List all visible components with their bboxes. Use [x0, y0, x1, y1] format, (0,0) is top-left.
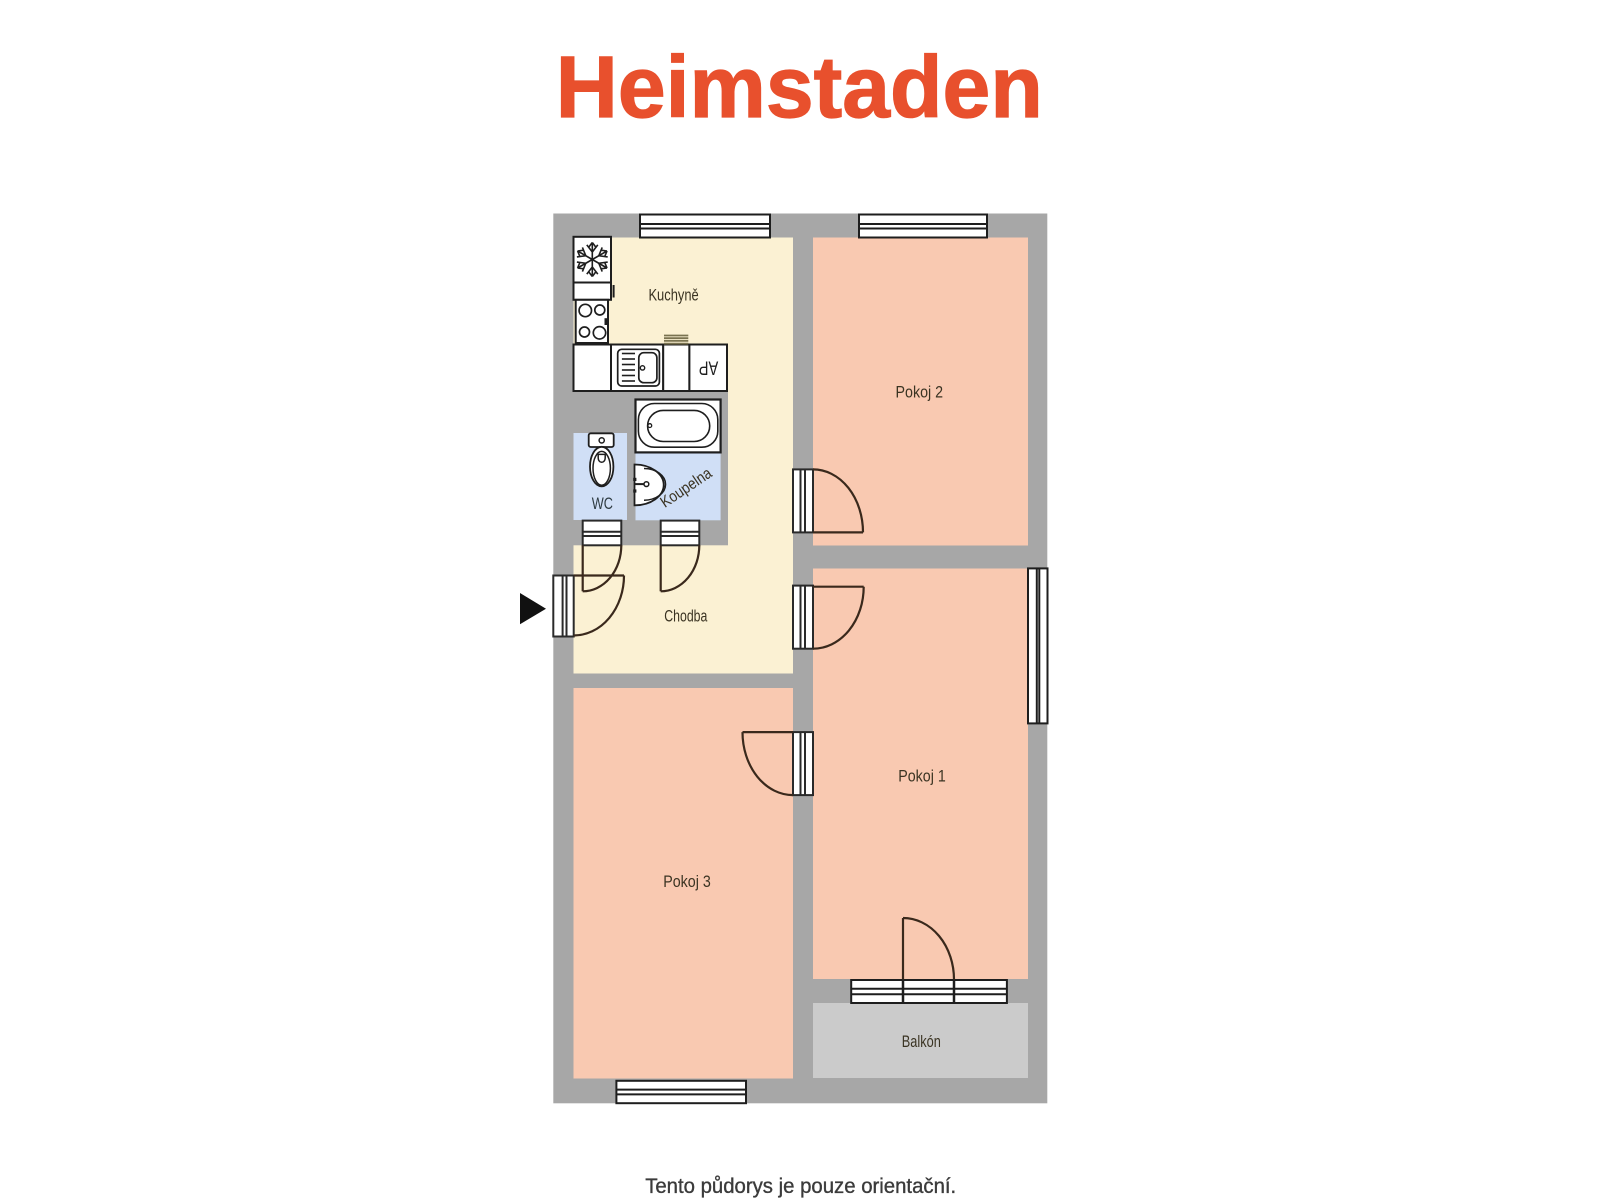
- svg-text:Pokoj 1: Pokoj 1: [898, 768, 946, 786]
- svg-text:Pokoj 3: Pokoj 3: [663, 873, 711, 891]
- svg-text:Pokoj 2: Pokoj 2: [896, 383, 944, 401]
- svg-text:Chodba: Chodba: [664, 607, 708, 625]
- svg-text:Tento půdorys je pouze orienta: Tento půdorys je pouze orientační.: [645, 1175, 956, 1198]
- svg-text:Balkón: Balkón: [902, 1033, 941, 1051]
- svg-text:Kuchyně: Kuchyně: [648, 287, 698, 305]
- svg-text:AP: AP: [699, 357, 719, 378]
- svg-text:WC: WC: [592, 495, 613, 513]
- svg-text:Heimstaden: Heimstaden: [556, 39, 1043, 136]
